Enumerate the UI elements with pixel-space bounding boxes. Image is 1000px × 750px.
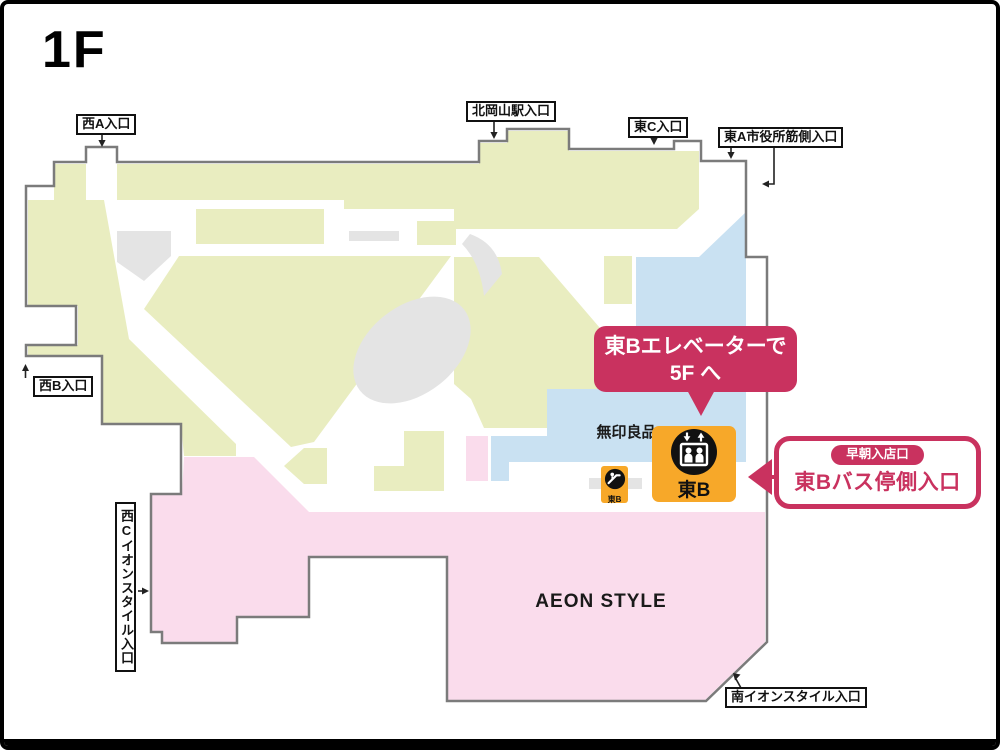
bottom-divider-bar xyxy=(4,739,996,746)
elevator-poi: 東B xyxy=(652,426,736,502)
escalator-icon xyxy=(604,468,626,490)
escalator-poi: 東B xyxy=(601,466,628,503)
elevator-poi-label: 東B xyxy=(652,481,736,500)
elevator-icon xyxy=(670,428,718,476)
entrance-label-west-b: 西B入口 xyxy=(33,376,93,397)
entrance-label-east-a-city-hall: 東A市役所筋側入口 xyxy=(718,127,843,148)
bubble-line-2: 5F へ xyxy=(594,360,797,387)
floor-title: 1F xyxy=(42,20,107,80)
early-entry-badge: 早朝入店口 xyxy=(831,445,924,465)
bubble-line-1: 東Bエレベーターで xyxy=(594,333,797,360)
entrance-label-west-c-aeon-style: 西Cイオンスタイル入口 xyxy=(115,502,136,672)
bus-stop-entrance-callout: 早朝入店口 東Bバス停側入口 xyxy=(774,436,981,509)
entrance-label-east-c: 東C入口 xyxy=(628,117,688,138)
zone-label-aeon-style: AEON STYLE xyxy=(501,591,701,613)
entrance-label-kitaokayama-station: 北岡山駅入口 xyxy=(466,101,556,122)
escalator-poi-label: 東B xyxy=(601,496,628,504)
bus-stop-entrance-title: 東Bバス停側入口 xyxy=(779,466,976,496)
floor-map-frame: 1F 西A入口 北岡山駅入口 東C入口 東A市役所筋側入口 西B入口 西Cイオン… xyxy=(0,0,1000,750)
entrance-label-west-a: 西A入口 xyxy=(76,114,136,135)
entrance-label-south-aeon-style: 南イオンスタイル入口 xyxy=(725,687,867,708)
elevator-info-bubble: 東Bエレベーターで 5F へ xyxy=(594,326,797,392)
